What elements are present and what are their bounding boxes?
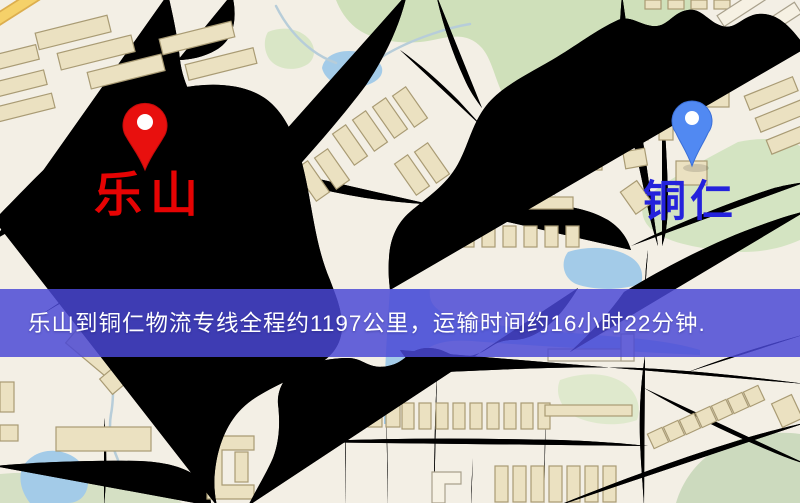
route-info-banner: 乐山到铜仁物流专线全程约1197公里，运输时间约16小时22分钟. xyxy=(0,289,800,357)
map-screenshot: 乐山 铜仁 乐山到铜仁物流专线全程约1197公里，运输时间约16小时22分钟. xyxy=(0,0,800,503)
map-background: 乐山 铜仁 xyxy=(0,0,800,503)
route-info-text: 乐山到铜仁物流专线全程约1197公里，运输时间约16小时22分钟. xyxy=(28,306,706,338)
destination-label: 铜仁 xyxy=(643,178,737,226)
destination-pin-shadow xyxy=(683,164,709,172)
origin-label: 乐山 xyxy=(94,169,206,222)
